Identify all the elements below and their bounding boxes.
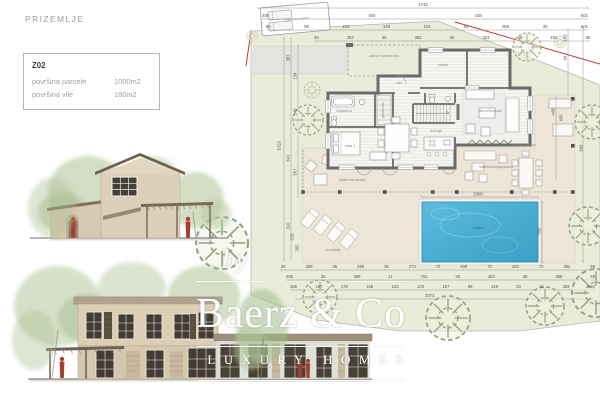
dim-value: 608 (579, 145, 584, 152)
dim-value: 567 (293, 169, 298, 176)
dim-value: 154 (293, 73, 298, 80)
dim-value: 387 (286, 55, 291, 62)
dim-value: 1029 (277, 141, 282, 150)
dim-pool-width: 1000 (473, 192, 482, 197)
road-strip (251, 46, 348, 74)
info-value: 180m2 (114, 88, 151, 101)
pool (419, 199, 541, 265)
info-label: površina parcele (32, 75, 114, 88)
dim-pool-depth: 550 (537, 228, 542, 235)
dim-value: 282 (295, 245, 300, 252)
info-label: površina vile (32, 88, 114, 101)
dim-value: 319 (290, 234, 295, 241)
dim-value: 406 (559, 115, 564, 122)
info-box: Z02 površina parcele 1000m2 površina vil… (23, 53, 160, 110)
site-plan (196, 2, 600, 340)
info-value: 1000m2 (114, 75, 151, 88)
dim-value: 310 (286, 223, 291, 230)
dim-value: 183 (563, 35, 568, 42)
floor-plan-sheet: PRIZEMLJE Z02 površina parcele 1000m2 po… (0, 0, 600, 400)
dim-value: 448 (551, 109, 556, 116)
info-row: površina vile 180m2 (32, 88, 151, 101)
page-title: PRIZEMLJE (25, 14, 84, 24)
dim-value: 148 (293, 109, 298, 116)
unit-code: Z02 (32, 61, 151, 70)
dim-value: 641 (286, 155, 291, 162)
info-row: površina parcele 1000m2 (32, 75, 151, 88)
elevation-side-view (28, 153, 231, 241)
dim-value: 94 (563, 56, 568, 61)
